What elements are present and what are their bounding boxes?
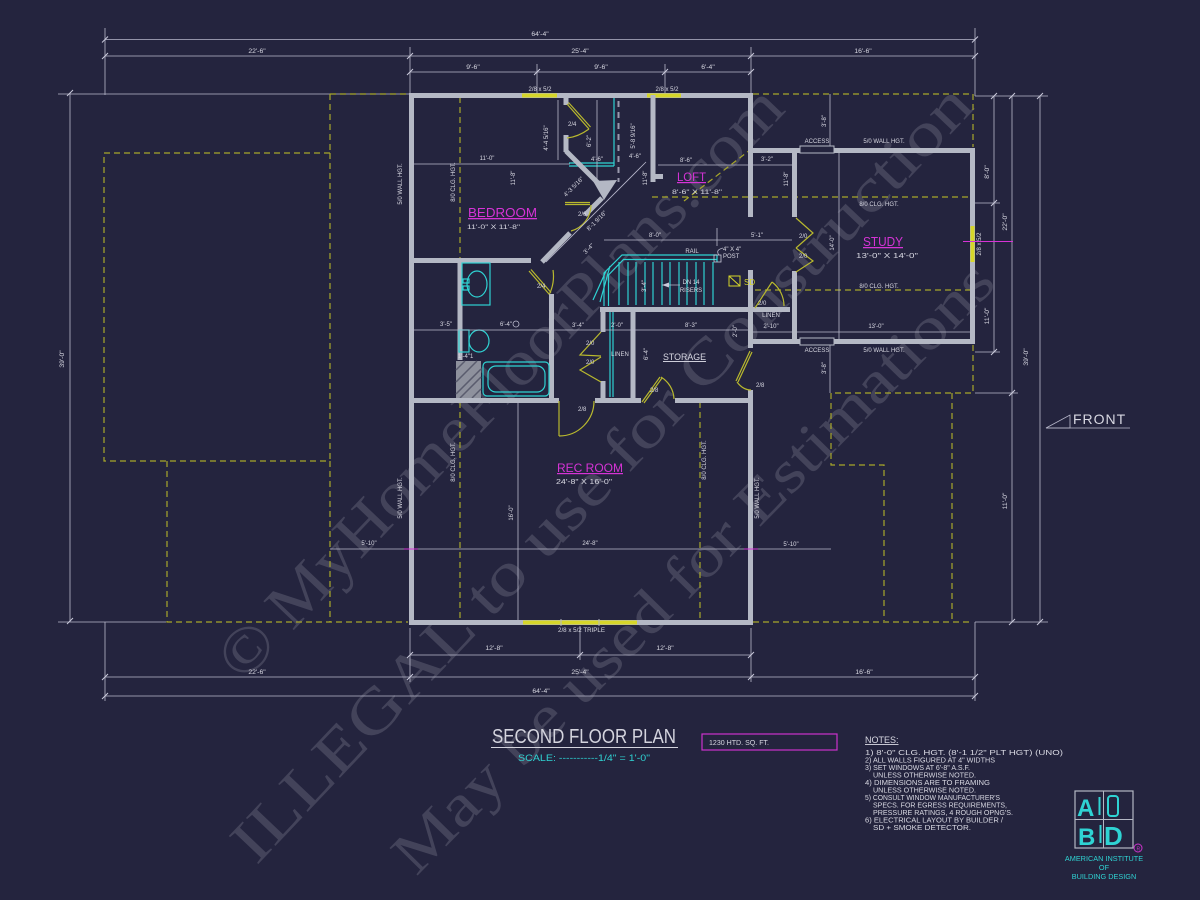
- svg-text:8/0 CLG. HGT.: 8/0 CLG. HGT.: [451, 442, 457, 482]
- svg-text:6'-4": 6'-4": [644, 348, 650, 360]
- svg-text:2/8 x 5/2 TRIPLE: 2/8 x 5/2 TRIPLE: [558, 628, 605, 634]
- svg-text:3'-8": 3'-8": [822, 362, 828, 374]
- svg-text:24'-8" X 16'-0": 24'-8" X 16'-0": [556, 477, 612, 486]
- svg-text:12'-8": 12'-8": [485, 645, 503, 652]
- svg-text:11'-8": 11'-8": [643, 171, 649, 186]
- svg-text:5/0 WALL HGT.: 5/0 WALL HGT.: [398, 477, 404, 519]
- svg-text:2/8 x 5/2: 2/8 x 5/2: [528, 87, 552, 93]
- svg-text:16'-0": 16'-0": [509, 505, 515, 520]
- svg-text:5/0 WALL HGT.: 5/0 WALL HGT.: [398, 163, 404, 205]
- svg-text:8/0 CLG. HGT.: 8/0 CLG. HGT.: [859, 202, 899, 208]
- svg-text:OF: OF: [1099, 863, 1110, 872]
- svg-text:6'-2": 6'-2": [587, 135, 593, 147]
- svg-text:SCALE: -----------1/4" = 1'-0": SCALE: -----------1/4" = 1'-0": [518, 753, 650, 764]
- svg-text:FRONT: FRONT: [1073, 411, 1126, 427]
- svg-text:RISERS: RISERS: [680, 288, 702, 294]
- svg-text:BUILDING DESIGN: BUILDING DESIGN: [1072, 872, 1136, 881]
- svg-text:3'-5": 3'-5": [440, 322, 452, 328]
- svg-text:39'-0": 39'-0": [59, 350, 66, 368]
- svg-text:2/8: 2/8: [578, 407, 587, 413]
- svg-text:22'-0": 22'-0": [1002, 213, 1009, 231]
- svg-text:LINEN: LINEN: [762, 313, 780, 319]
- svg-text:64'-4": 64'-4": [531, 31, 549, 38]
- svg-text:5'-1": 5'-1": [751, 233, 763, 239]
- svg-text:SECOND FLOOR PLAN: SECOND FLOOR PLAN: [492, 726, 676, 748]
- svg-text:2/8: 2/8: [756, 383, 765, 389]
- svg-text:D: D: [1104, 821, 1123, 851]
- svg-text:9'-6": 9'-6": [466, 64, 480, 71]
- svg-text:22'-6": 22'-6": [248, 669, 266, 676]
- svg-text:25'-4": 25'-4": [571, 669, 589, 676]
- svg-text:SD + SMOKE DETECTOR.: SD + SMOKE DETECTOR.: [873, 823, 971, 832]
- svg-text:14'-0": 14'-0": [830, 235, 836, 250]
- svg-text:12'-8": 12'-8": [656, 645, 674, 652]
- svg-text:2/8: 2/8: [650, 388, 659, 394]
- svg-text:2/0: 2/0: [799, 254, 808, 260]
- svg-text:4" X 4": 4" X 4": [723, 247, 741, 253]
- svg-text:11'-0": 11'-0": [480, 156, 495, 162]
- svg-text:16'-6": 16'-6": [854, 48, 872, 55]
- svg-text:4'-4 5/16": 4'-4 5/16": [544, 125, 550, 150]
- svg-text:25'-4": 25'-4": [571, 48, 589, 55]
- svg-text:5/0 WALL HGT.: 5/0 WALL HGT.: [863, 348, 905, 354]
- svg-text:6'-4": 6'-4": [500, 322, 512, 328]
- svg-text:2/4: 2/4: [537, 284, 546, 290]
- svg-text:2'-0": 2'-0": [611, 323, 623, 329]
- svg-text:5/0 WALL HGT.: 5/0 WALL HGT.: [755, 477, 761, 519]
- svg-text:REC ROOM: REC ROOM: [557, 461, 623, 475]
- svg-text:8'-6" X 11'-8": 8'-6" X 11'-8": [672, 189, 723, 196]
- svg-text:BEDROOM: BEDROOM: [468, 205, 537, 220]
- svg-text:2/0: 2/0: [799, 234, 808, 240]
- svg-text:8/0 CLG. HGT.: 8/0 CLG. HGT.: [451, 162, 457, 202]
- svg-text:2/8 x 5/2: 2/8 x 5/2: [977, 232, 983, 256]
- svg-text:2/0: 2/0: [586, 360, 595, 366]
- svg-text:STUDY: STUDY: [863, 235, 904, 249]
- svg-text:11'-8": 11'-8": [511, 171, 517, 186]
- svg-text:1'-4"1: 1'-4"1: [458, 354, 474, 360]
- svg-text:64'-4": 64'-4": [532, 688, 550, 695]
- svg-text:2/4: 2/4: [568, 122, 577, 128]
- svg-text:2'-0": 2'-0": [733, 325, 739, 337]
- svg-text:5'-10": 5'-10": [783, 542, 798, 548]
- svg-text:2/0: 2/0: [586, 341, 595, 347]
- svg-text:SD: SD: [744, 278, 755, 287]
- svg-text:2/8 x 5/2: 2/8 x 5/2: [655, 87, 679, 93]
- svg-text:6'-4": 6'-4": [701, 64, 715, 71]
- svg-text:8'-3": 8'-3": [685, 323, 697, 329]
- svg-text:11'-0": 11'-0": [1002, 492, 1009, 509]
- svg-text:A: A: [1077, 795, 1094, 822]
- svg-text:2/6: 2/6: [578, 212, 587, 218]
- svg-text:2/0: 2/0: [758, 301, 767, 307]
- svg-text:POST: POST: [723, 254, 740, 260]
- svg-text:13'-0": 13'-0": [868, 324, 883, 330]
- svg-text:22'-6": 22'-6": [248, 48, 266, 55]
- svg-text:3'-4": 3'-4": [642, 280, 648, 292]
- svg-text:4'-6": 4'-6": [629, 154, 641, 160]
- svg-text:5'-10": 5'-10": [361, 541, 376, 547]
- svg-text:39'-0": 39'-0": [1023, 348, 1030, 366]
- svg-text:RAIL: RAIL: [685, 249, 699, 255]
- svg-text:5'-8 9/16": 5'-8 9/16": [631, 123, 637, 148]
- svg-text:24'-8": 24'-8": [582, 541, 597, 547]
- svg-text:R: R: [1137, 847, 1141, 853]
- svg-text:3'-4": 3'-4": [572, 323, 584, 329]
- svg-text:5/0 WALL HGT.: 5/0 WALL HGT.: [863, 139, 905, 145]
- svg-text:STORAGE: STORAGE: [663, 352, 706, 363]
- svg-text:8/0 CLG. HGT.: 8/0 CLG. HGT.: [702, 440, 708, 480]
- svg-text:11'-8": 11'-8": [784, 172, 790, 187]
- svg-text:NOTES:: NOTES:: [865, 735, 899, 745]
- svg-text:8'-0": 8'-0": [649, 233, 661, 239]
- svg-text:DN 14: DN 14: [682, 280, 700, 286]
- svg-text:ACCESS: ACCESS: [805, 139, 830, 145]
- svg-text:3'-2": 3'-2": [761, 157, 773, 163]
- svg-text:3'-8": 3'-8": [822, 115, 828, 127]
- svg-text:8'-6": 8'-6": [680, 158, 692, 164]
- svg-text:8/0 CLG. HGT.: 8/0 CLG. HGT.: [859, 284, 899, 290]
- svg-text:ACCESS: ACCESS: [805, 348, 830, 354]
- svg-text:LINEN: LINEN: [611, 352, 629, 358]
- svg-text:8'-0": 8'-0": [984, 165, 991, 179]
- svg-text:LOFT: LOFT: [677, 170, 707, 184]
- svg-text:11'-0" X 11'-8": 11'-0" X 11'-8": [467, 224, 521, 231]
- svg-text:1230 HTD. SQ. FT.: 1230 HTD. SQ. FT.: [709, 738, 769, 747]
- svg-text:13'-0" X 14'-0": 13'-0" X 14'-0": [856, 251, 918, 260]
- svg-text:9'-6": 9'-6": [594, 64, 608, 71]
- svg-text:B: B: [1078, 824, 1095, 851]
- svg-text:2'-10": 2'-10": [763, 324, 778, 330]
- svg-text:11'-0": 11'-0": [984, 307, 991, 324]
- svg-text:16'-6": 16'-6": [855, 669, 873, 676]
- svg-text:AMERICAN INSTITUTE: AMERICAN INSTITUTE: [1065, 854, 1143, 863]
